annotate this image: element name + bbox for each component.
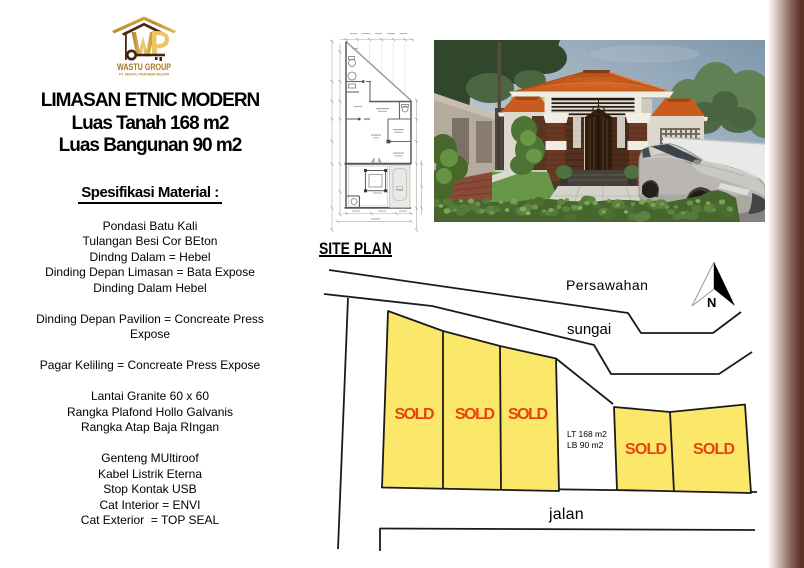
- svg-text:sungai: sungai: [567, 321, 611, 338]
- svg-text:N: N: [707, 295, 716, 310]
- svg-text:LB 90 m2: LB 90 m2: [567, 440, 604, 450]
- svg-text:SOLD: SOLD: [625, 441, 667, 458]
- svg-text:jalan: jalan: [548, 506, 584, 523]
- svg-text:SOLD: SOLD: [455, 406, 495, 423]
- svg-text:SOLD: SOLD: [508, 406, 548, 423]
- svg-text:SOLD: SOLD: [395, 406, 435, 423]
- svg-text:Persawahan: Persawahan: [566, 277, 648, 293]
- svg-text:SOLD: SOLD: [693, 441, 735, 458]
- svg-text:LT 168 m2: LT 168 m2: [567, 429, 607, 439]
